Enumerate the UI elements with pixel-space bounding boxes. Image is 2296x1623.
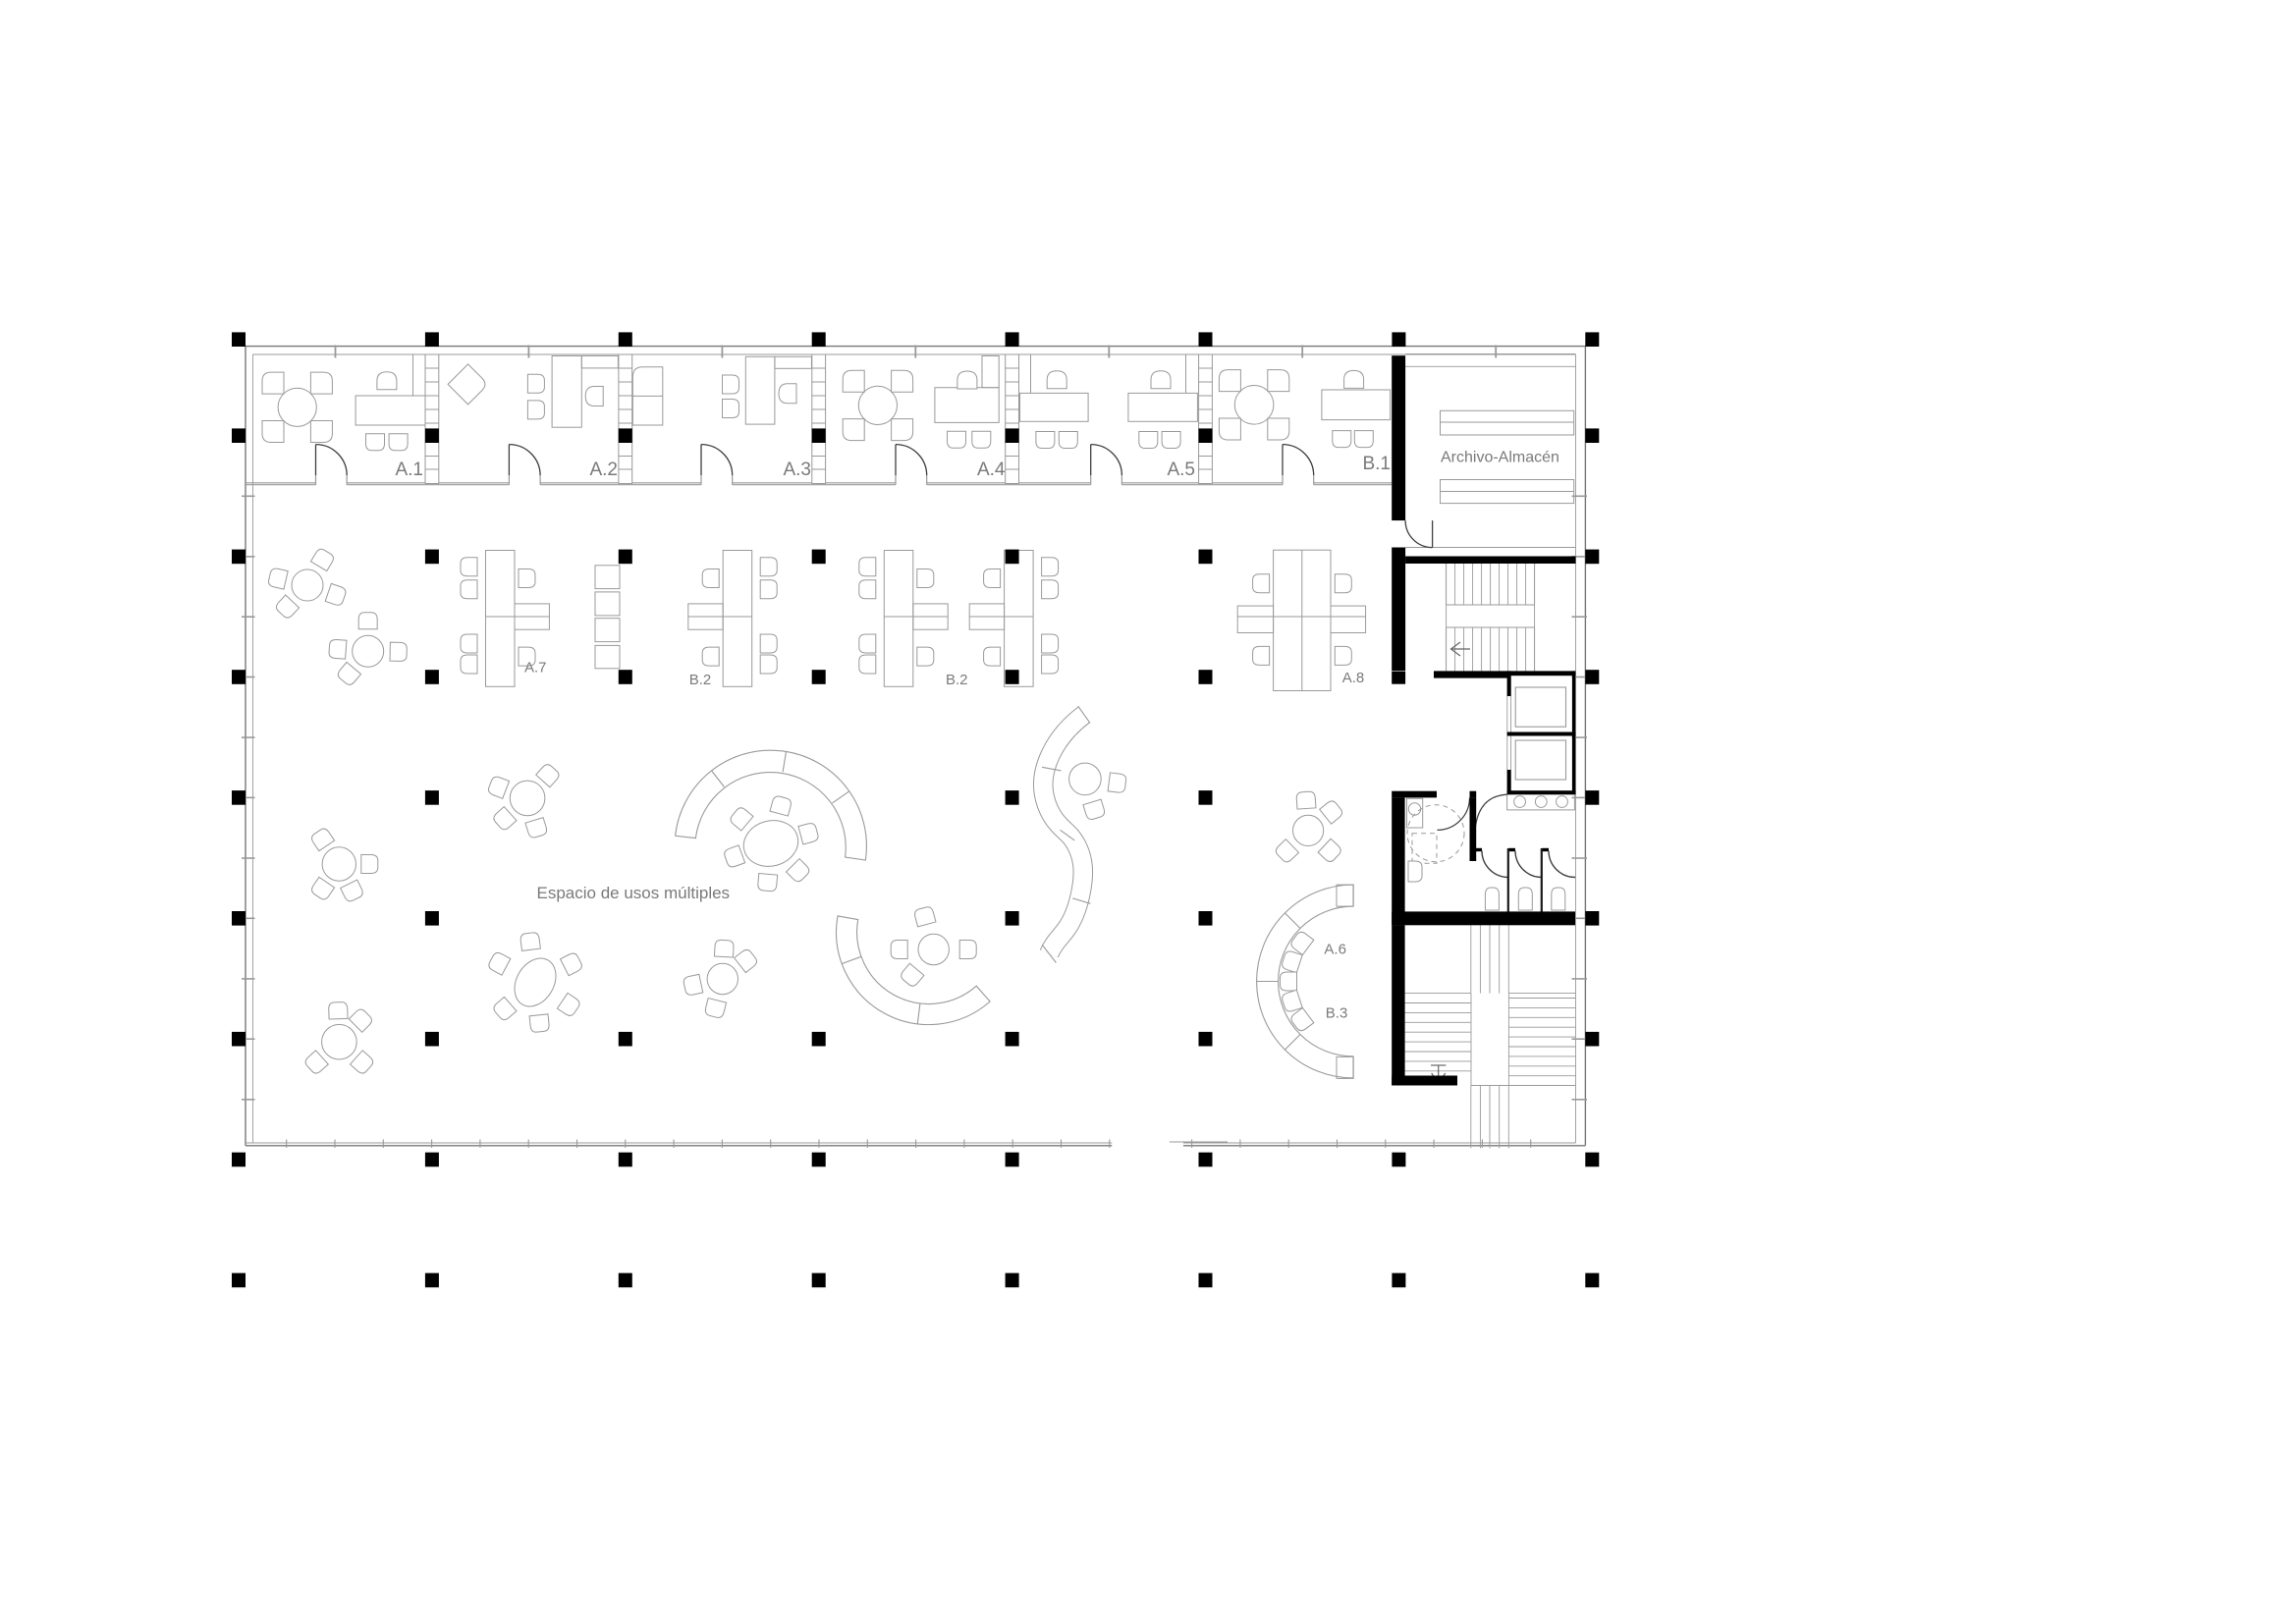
svg-text:A.3: A.3 xyxy=(783,460,811,480)
svg-text:B.2: B.2 xyxy=(689,672,712,688)
svg-text:A.1: A.1 xyxy=(395,460,423,480)
svg-text:A.2: A.2 xyxy=(589,460,618,480)
svg-text:A.6: A.6 xyxy=(1324,942,1346,958)
svg-text:A.7: A.7 xyxy=(524,660,547,676)
svg-text:Espacio de usos múltiples: Espacio de usos múltiples xyxy=(537,884,731,902)
svg-text:Archivo-Almacén: Archivo-Almacén xyxy=(1441,450,1559,466)
svg-text:A.8: A.8 xyxy=(1342,670,1365,686)
svg-text:B.3: B.3 xyxy=(1326,1005,1348,1022)
svg-text:B.1: B.1 xyxy=(1362,454,1391,474)
svg-text:B.2: B.2 xyxy=(946,672,968,688)
svg-text:A.4: A.4 xyxy=(977,460,1006,480)
svg-text:A.5: A.5 xyxy=(1167,460,1195,480)
